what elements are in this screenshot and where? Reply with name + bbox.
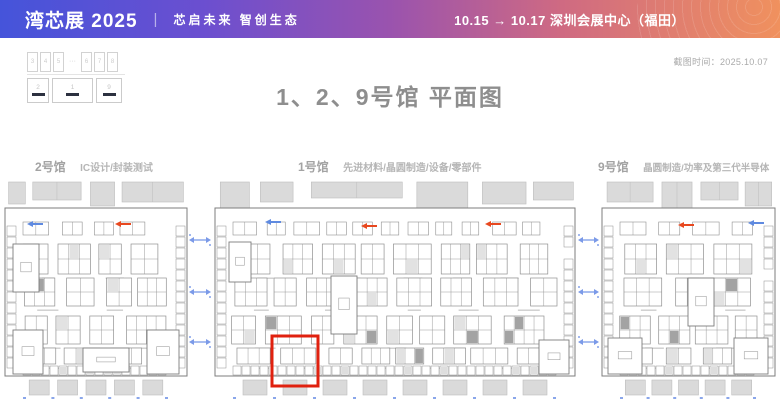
event-schedule: 10.15 → 10.17 深圳会展中心（福田）	[454, 10, 685, 29]
hall-2-category: IC设计/封装测试	[80, 163, 153, 174]
hall-1-label: 1号馆 先进材料/晶圆制造/设备/零部件	[298, 158, 481, 176]
hall-2-name: 2号馆	[35, 160, 66, 174]
hall-connector-arrow	[577, 234, 600, 246]
hall-connector-arrow	[577, 336, 600, 348]
hall-connector-arrow	[188, 234, 212, 246]
hall-1-category: 先进材料/晶圆制造/设备/零部件	[343, 163, 481, 174]
hall-9-name: 9号馆	[598, 160, 629, 174]
hall-9-label: 9号馆 晶圆制造/功率及第三代半导体	[598, 158, 769, 176]
hall-1-name: 1号馆	[298, 160, 329, 174]
minimap-hall-8: 8	[107, 52, 118, 72]
minimap-hall-6: 6	[81, 52, 92, 72]
minimap-hall-7: 7	[94, 52, 105, 72]
event-logo: 湾芯展 2025	[25, 6, 138, 33]
hall-connector-arrow	[188, 336, 212, 348]
minimap-hall-4: 4	[40, 52, 51, 72]
hall-connector-arrow	[577, 286, 600, 298]
hall-2-label: 2号馆 IC设计/封装测试	[35, 158, 153, 176]
hall-2-floor-plan	[3, 180, 189, 405]
hall-connector-arrow	[188, 286, 212, 298]
capture-time-label: 截图时间：2025.10.07	[673, 55, 768, 68]
floor-plan-page: 湾芯展 2025 | 芯启未来 智创生态 10.15 → 10.17 深圳会展中…	[0, 0, 780, 410]
event-header: 湾芯展 2025 | 芯启未来 智创生态 10.15 → 10.17 深圳会展中…	[0, 0, 780, 38]
hall-1-floor-plan	[213, 180, 577, 405]
header-divider: |	[154, 11, 158, 28]
minimap-upper-halls: 3 4 5 ··· 6 7 8	[27, 52, 125, 75]
hall-9-floor-plan	[600, 180, 777, 405]
minimap-hall-3: 3	[27, 52, 38, 72]
hall-9-category: 晶圆制造/功率及第三代半导体	[643, 163, 769, 174]
floor-plans	[0, 180, 780, 410]
minimap-ellipsis: ···	[66, 52, 79, 72]
page-title: 1、2、9号馆 平面图	[0, 78, 780, 112]
event-slogan: 芯启未来 智创生态	[173, 11, 299, 28]
minimap-hall-5: 5	[53, 52, 64, 72]
